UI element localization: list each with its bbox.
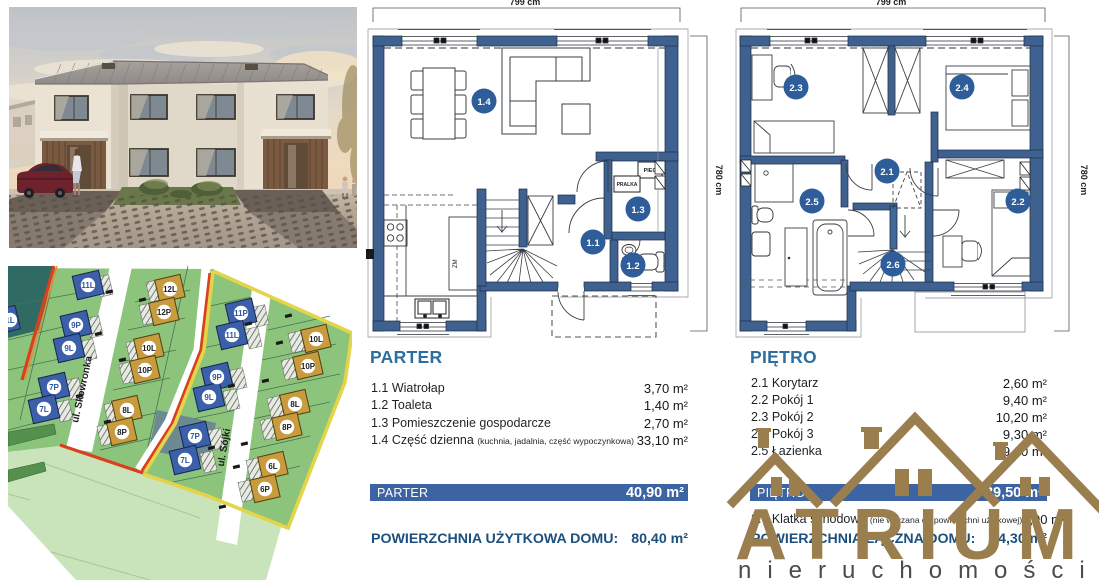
svg-text:2.2: 2.2: [1011, 197, 1024, 208]
svg-text:12P: 12P: [157, 308, 172, 317]
svg-text:799 cm: 799 cm: [876, 0, 907, 7]
svg-text:7L: 7L: [180, 456, 189, 465]
svg-text:2.3: 2.3: [789, 83, 802, 94]
svg-text:10P: 10P: [138, 366, 153, 375]
svg-text:9L: 9L: [64, 344, 73, 353]
svg-text:1L: 1L: [8, 316, 15, 325]
svg-text:1.2: 1.2: [626, 261, 639, 272]
svg-text:ZM: ZM: [453, 259, 459, 268]
svg-text:10P: 10P: [301, 362, 316, 371]
svg-text:9P: 9P: [212, 373, 222, 382]
svg-text:2.6: 2.6: [886, 260, 899, 271]
svg-text:6P: 6P: [260, 485, 270, 494]
svg-text:2.4: 2.4: [955, 83, 969, 94]
svg-text:8L: 8L: [122, 406, 131, 415]
svg-text:8P: 8P: [117, 428, 127, 437]
svg-text:9P: 9P: [71, 321, 81, 330]
svg-text:12L: 12L: [163, 285, 177, 294]
svg-text:9L: 9L: [204, 393, 213, 402]
svg-text:PIEC: PIEC: [644, 168, 657, 174]
svg-text:780 cm: 780 cm: [1079, 165, 1089, 196]
svg-text:1.3: 1.3: [631, 205, 644, 216]
svg-text:10L: 10L: [142, 344, 156, 353]
svg-text:1.1: 1.1: [586, 238, 600, 249]
svg-text:8P: 8P: [282, 423, 292, 432]
svg-text:11L: 11L: [81, 281, 94, 290]
svg-text:8L: 8L: [290, 400, 299, 409]
svg-text:PRALKA: PRALKA: [617, 182, 638, 188]
svg-text:10L: 10L: [309, 335, 323, 344]
svg-text:799 cm: 799 cm: [510, 0, 541, 7]
svg-text:7P: 7P: [49, 383, 59, 392]
svg-text:1.4: 1.4: [477, 97, 491, 108]
svg-text:11P: 11P: [234, 309, 248, 318]
svg-text:nieruchomości: nieruchomości: [738, 557, 1099, 580]
svg-text:6L: 6L: [268, 462, 277, 471]
svg-text:11L: 11L: [225, 331, 238, 340]
svg-text:7P: 7P: [190, 432, 200, 441]
svg-text:2.1: 2.1: [880, 167, 894, 178]
svg-text:7L: 7L: [39, 405, 48, 414]
svg-text:2.5: 2.5: [805, 197, 819, 208]
